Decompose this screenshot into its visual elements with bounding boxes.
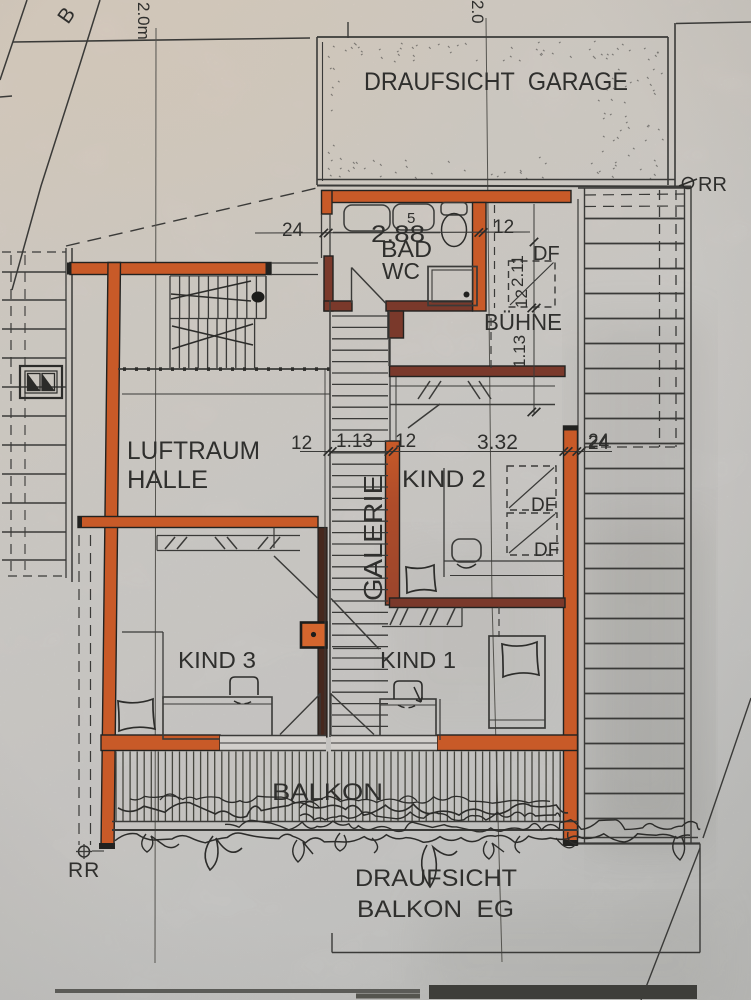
svg-text:BÜHNE: BÜHNE	[484, 309, 562, 335]
svg-text:1.13: 1.13	[336, 431, 373, 452]
svg-text:DRAUFSICHT: DRAUFSICHT	[355, 865, 517, 892]
svg-text:LUFTRAUM: LUFTRAUM	[127, 437, 260, 465]
svg-text:WC: WC	[382, 258, 420, 284]
svg-text:12: 12	[512, 289, 531, 308]
svg-text:GALERIE: GALERIE	[358, 475, 388, 601]
svg-text:12: 12	[395, 431, 416, 452]
svg-text:1.13: 1.13	[510, 335, 529, 368]
svg-text:DF: DF	[533, 243, 560, 265]
svg-text:HALLE: HALLE	[127, 466, 208, 494]
svg-text:2.88: 2.88	[371, 221, 425, 248]
svg-text:KIND 3: KIND 3	[178, 647, 256, 673]
svg-text:24: 24	[282, 220, 304, 241]
svg-text:BALKON: BALKON	[272, 779, 383, 806]
svg-text:3.32: 3.32	[477, 431, 518, 454]
svg-text:DF: DF	[534, 540, 559, 561]
svg-text:12: 12	[291, 433, 312, 454]
svg-text:BALKON EG: BALKON EG	[357, 896, 514, 923]
svg-text:5: 5	[407, 210, 415, 227]
svg-text:2.0: 2.0	[468, 0, 487, 24]
svg-text:2.11: 2.11	[508, 255, 527, 287]
svg-text:12: 12	[493, 217, 514, 238]
svg-text:KIND 1: KIND 1	[380, 647, 456, 673]
svg-text:2.0m: 2.0m	[134, 2, 153, 40]
svg-text:24: 24	[588, 433, 610, 454]
svg-text:RR: RR	[68, 859, 100, 882]
svg-text:RR: RR	[698, 174, 727, 196]
svg-text:DRAUFSICHT GARAGE: DRAUFSICHT GARAGE	[364, 68, 628, 96]
